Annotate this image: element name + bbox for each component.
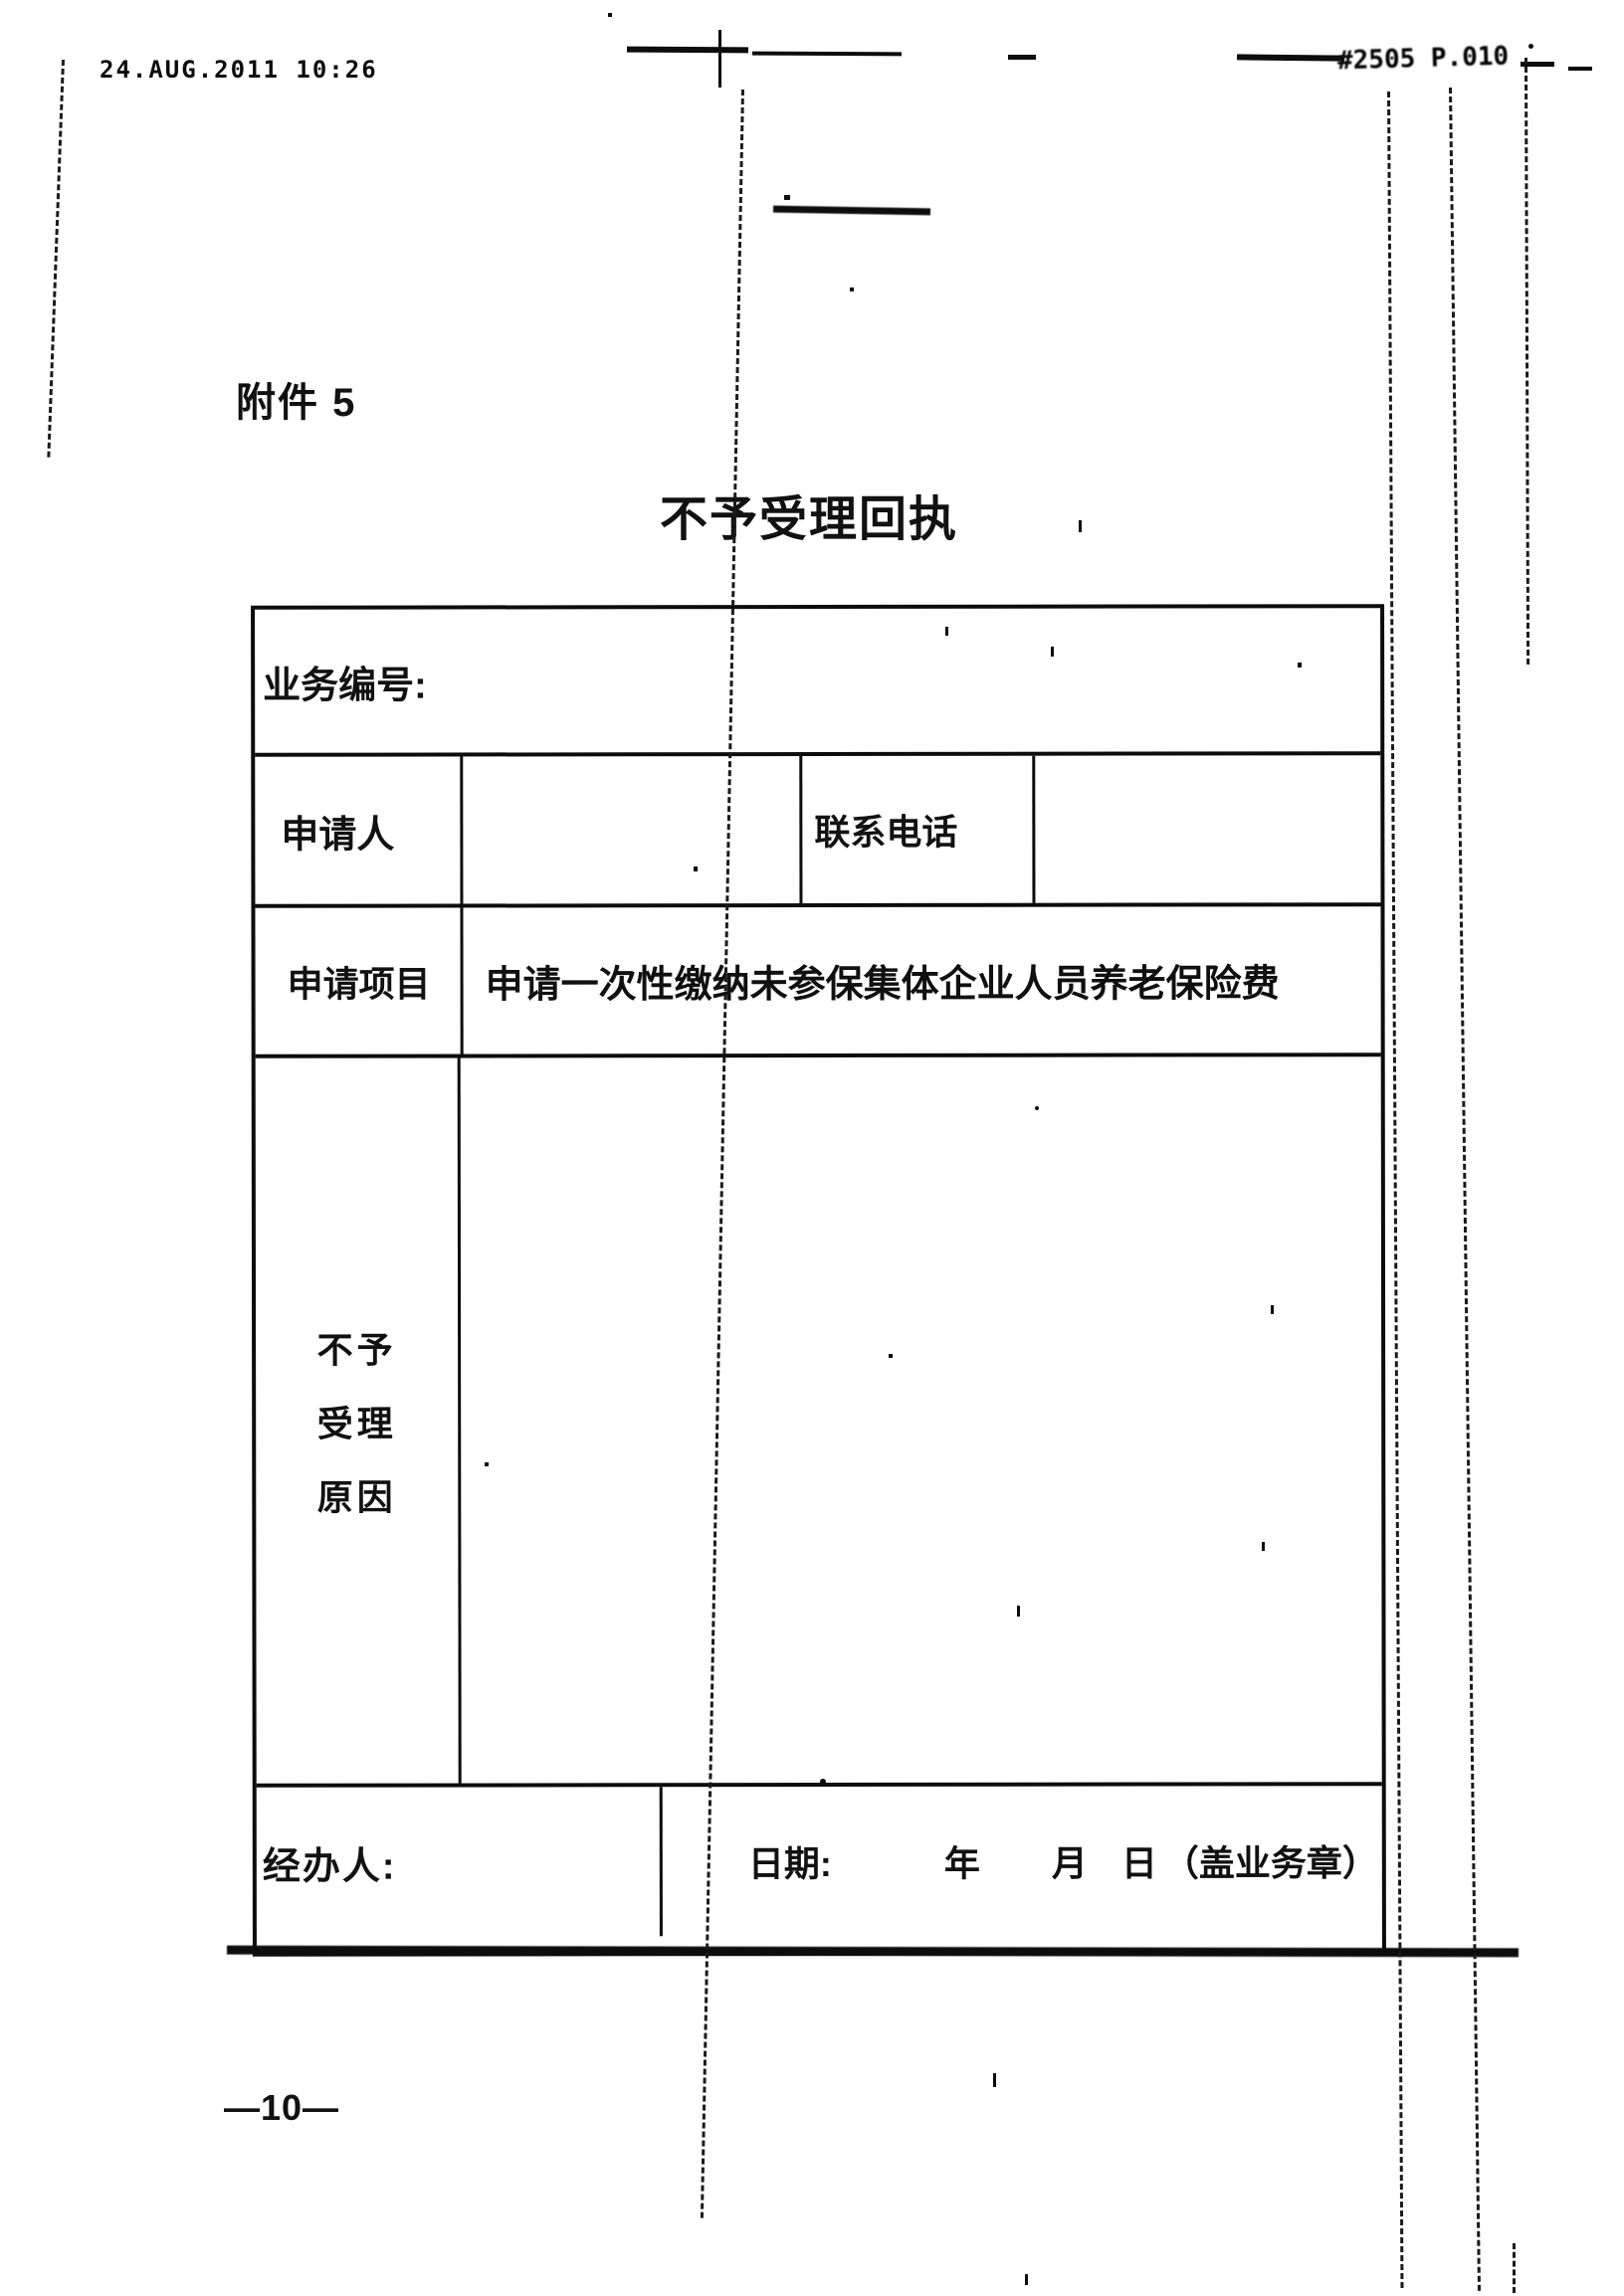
scan-artifact-dash	[1568, 67, 1592, 71]
scan-artifact-tick	[1079, 520, 1082, 532]
reason-label-line3: 原因	[317, 1468, 397, 1520]
applicant-label: 申请人	[281, 803, 394, 858]
scan-artifact-tick	[718, 30, 721, 88]
scan-artifact-smudge	[773, 206, 930, 216]
scan-artifact-dot	[694, 866, 698, 871]
date-label: 日期:	[748, 1835, 832, 1887]
row-signature: 经办人: 日期: 年 月 日 （盖业务章）	[257, 1786, 1382, 1937]
scan-artifact-line	[752, 52, 902, 57]
fax-page: 24.AUG.2011 10:26 #2505 P.010 附件 5 不予受理回…	[0, 0, 1624, 2296]
fax-timestamp: 24.AUG.2011 10:26	[100, 56, 378, 84]
scan-artifact-tick	[1051, 647, 1054, 657]
phone-value-cell	[1035, 755, 1380, 902]
scan-artifact-dot	[1298, 663, 1302, 668]
scan-artifact-tick	[1262, 1542, 1265, 1551]
scan-artifact-dash	[1008, 55, 1036, 60]
scan-artifact-dot	[850, 287, 854, 291]
attachment-label: 附件 5	[236, 370, 356, 428]
year-label: 年	[944, 1835, 980, 1887]
scan-artifact-line	[627, 47, 748, 54]
day-label: 日	[1121, 1835, 1157, 1887]
scan-artifact-dot	[820, 1779, 826, 1785]
scan-artifact-dot	[1528, 44, 1533, 49]
reason-value-cell	[461, 1056, 1382, 1783]
scan-artifact-line	[1237, 54, 1344, 61]
scan-artifact-tick	[1017, 1606, 1020, 1617]
scan-artifact-dot	[889, 1354, 893, 1358]
row-business-no: 业务编号:	[255, 608, 1380, 757]
item-value: 申请一次性缴纳未参保集体企业人员养老保险费	[486, 952, 1280, 1008]
reason-label-line1: 不予	[317, 1321, 397, 1373]
seal-label: （盖业务章）	[1163, 1834, 1378, 1886]
month-label: 月	[1052, 1835, 1088, 1887]
scan-artifact-right-line	[1513, 2243, 1516, 2293]
scan-artifact-left-line	[47, 60, 65, 458]
handler-label: 经办人:	[263, 1834, 397, 1889]
form-table: 业务编号: 申请人 联系电话 申请项目 申请一次性	[251, 604, 1386, 1957]
business-no-label: 业务编号:	[263, 654, 427, 708]
scan-artifact-tick	[1271, 1305, 1274, 1314]
row-item: 申请项目 申请一次性缴纳未参保集体企业人员养老保险费	[255, 906, 1380, 1058]
page-number: —10—	[224, 2087, 339, 2129]
row-reason: 不予 受理 原因	[256, 1056, 1382, 1788]
row-applicant: 申请人 联系电话	[255, 755, 1380, 908]
scan-artifact-right-line	[1387, 92, 1403, 2288]
fax-page-stamp: #2505 P.010	[1337, 42, 1510, 77]
scan-artifact-right-line	[1524, 58, 1529, 665]
scan-artifact-dot	[608, 13, 612, 17]
reason-label-line2: 受理	[317, 1395, 397, 1446]
item-label: 申请项目	[288, 955, 431, 1007]
scan-artifact-dot	[485, 1462, 489, 1466]
scan-artifact-tick	[993, 2073, 996, 2087]
page-title: 不予受理回执	[660, 479, 958, 549]
phone-label: 联系电话	[814, 804, 957, 856]
scan-artifact-dot	[1035, 1106, 1039, 1110]
scan-artifact-tick	[945, 627, 948, 636]
scan-artifact-dot	[784, 195, 790, 200]
applicant-value-cell	[463, 756, 802, 903]
scan-artifact-tick	[1025, 2274, 1028, 2285]
scan-artifact-right-line	[1449, 88, 1481, 2291]
